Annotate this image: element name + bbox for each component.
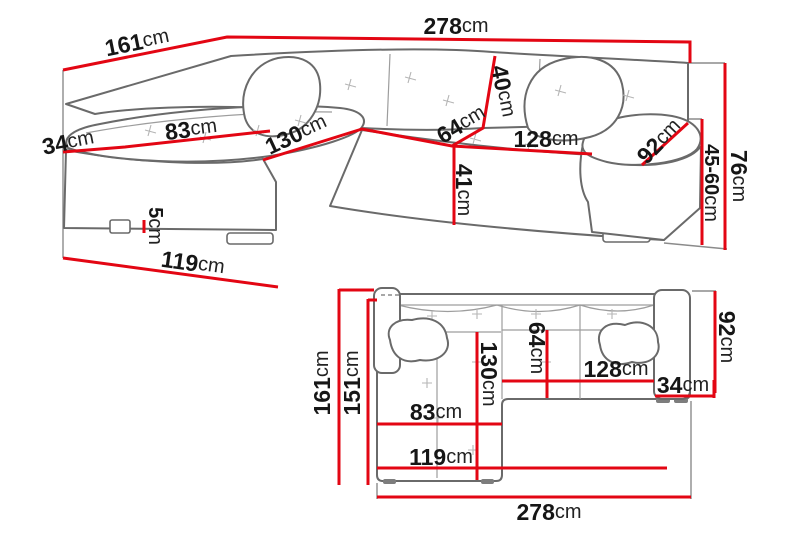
sofa-leg-left-3d (110, 220, 130, 233)
dim-label-leg-height-3d: 5cm (144, 207, 166, 245)
dim-label-total-width-plan: 278cm (516, 499, 581, 525)
dim-label-seat-width-3d: 128cm (513, 126, 578, 152)
dim-label-seat-width-plan: 128cm (583, 356, 648, 382)
diagram-canvas: 161cm 278cm 40cm 64cm 128cm 92cm 41cm 34… (0, 0, 800, 533)
dim-label-chaise-width-plan: 119cm (409, 444, 473, 470)
perspective-view: 161cm 278cm 40cm 64cm 128cm 92cm 41cm 34… (40, 13, 752, 287)
dim-label-chaise-seat-width-plan: 83cm (410, 399, 462, 425)
foot-mark-chaise-right-plan (481, 479, 494, 484)
dim-label-chaise-depth-3d: 119cm (160, 246, 227, 281)
dim-label-total-height-3d: 76cm (726, 150, 752, 202)
dim-label-side-length-plan: 161cm (309, 350, 335, 415)
dim-label-total-width-3d: 278cm (423, 13, 488, 39)
foot-mark-chaise-left-plan (383, 479, 396, 484)
pillow-left-plan (389, 318, 448, 361)
dim-label-seat-depth-plan: 64cm (524, 322, 550, 374)
dim-label-chaise-length-plan: 130cm (476, 341, 502, 406)
dim-label-seat-height-3d: 41cm (451, 164, 477, 216)
dim-label-armrest-depth-plan: 92cm (714, 311, 740, 363)
plan-view: 161cm 151cm 130cm 64cm 128cm 34cm 92cm 8… (309, 288, 740, 525)
sofa-leg-front-3d (227, 233, 273, 244)
dim-label-side-length-inner-plan: 151cm (339, 350, 365, 415)
dim-label-armrest-width-plan: 34cm (657, 372, 709, 398)
dim-label-armrest-height-3d: 45-60cm (700, 144, 722, 222)
sofa-dimensions-diagram: 161cm 278cm 40cm 64cm 128cm 92cm 41cm 34… (0, 0, 800, 533)
